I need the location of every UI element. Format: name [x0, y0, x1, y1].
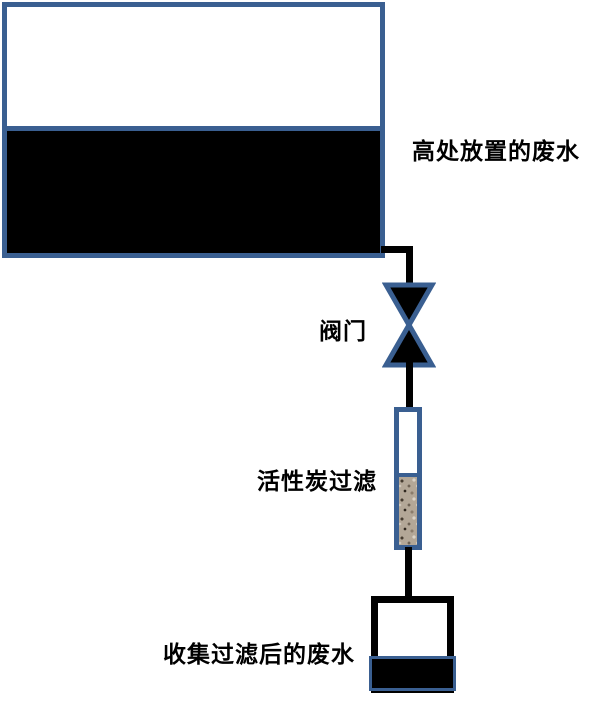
- filter-label: 活性炭过滤: [257, 462, 377, 496]
- carbon-media: [399, 477, 417, 545]
- collected-wastewater-liquid: [369, 656, 456, 691]
- valve-bottom-triangle: [386, 325, 432, 365]
- elevated-tank: [2, 2, 385, 258]
- valve-icon: [382, 281, 436, 369]
- filter-empty-section: [399, 412, 417, 473]
- valve-label: 阀门: [319, 312, 367, 346]
- valve-top-triangle: [386, 285, 432, 325]
- tank-wastewater-liquid: [7, 126, 380, 253]
- collector-label: 收集过滤后的废水: [163, 635, 355, 669]
- pipe-valve-to-filter: [406, 362, 413, 409]
- pipe-filter-to-collector: [405, 547, 412, 598]
- tank-label: 高处放置的废水: [412, 132, 580, 166]
- filtration-diagram: 高处放置的废水 阀门 活性炭过滤 收集过滤后的废水: [0, 0, 600, 702]
- carbon-filter-column: [394, 407, 422, 550]
- pipe-tank-to-valve: [406, 246, 413, 284]
